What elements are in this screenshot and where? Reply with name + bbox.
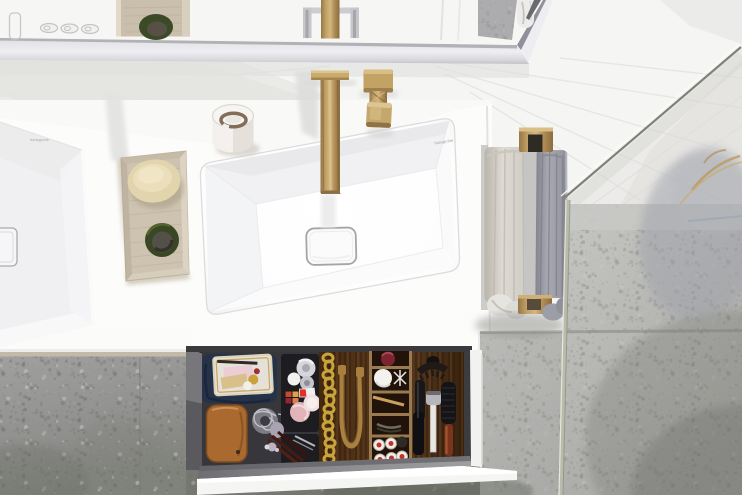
svg-text:hansgrohe: hansgrohe: [30, 137, 50, 142]
